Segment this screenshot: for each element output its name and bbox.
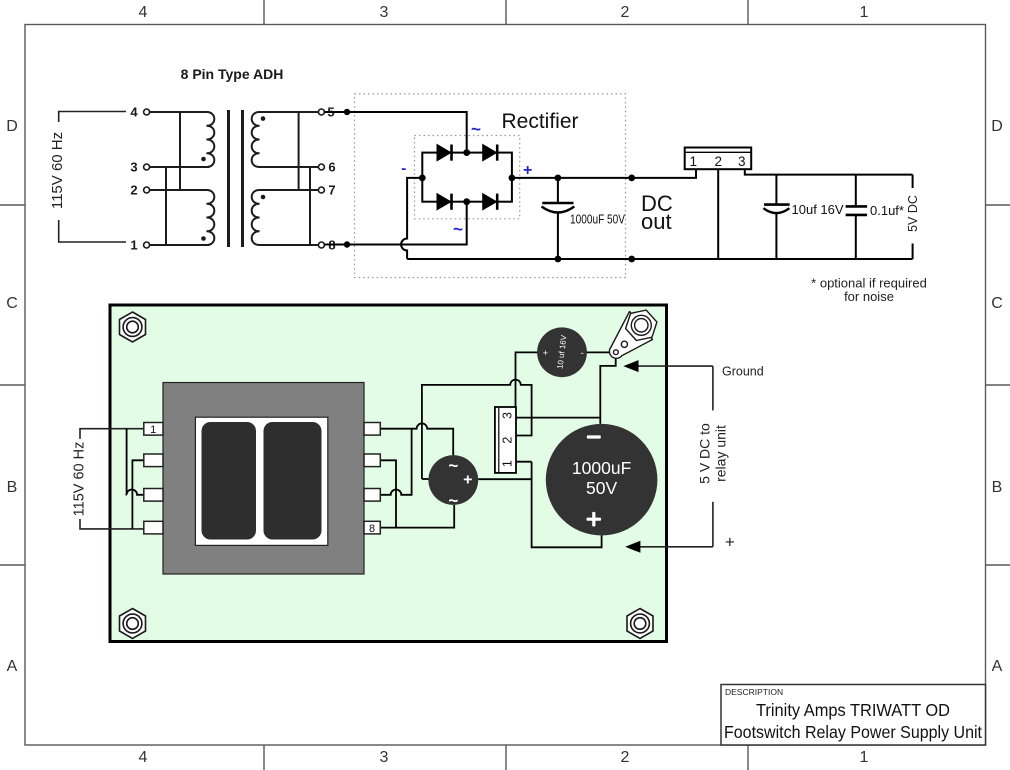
svg-text:7: 7 (328, 183, 335, 198)
svg-text:-: - (401, 160, 406, 177)
svg-text:D: D (6, 118, 18, 135)
svg-text:8: 8 (369, 523, 375, 535)
svg-text:10uf 16V: 10uf 16V (792, 202, 844, 217)
svg-text:1: 1 (860, 749, 869, 766)
svg-text:Footswitch Relay Power Supply: Footswitch Relay Power Supply Unit (724, 722, 982, 742)
svg-text:6: 6 (328, 160, 335, 175)
svg-text:50V: 50V (586, 478, 617, 498)
svg-text:1: 1 (130, 238, 137, 253)
svg-text:~: ~ (448, 491, 458, 510)
svg-text:out: out (641, 209, 672, 234)
svg-text:1: 1 (501, 460, 515, 467)
svg-text:4: 4 (139, 749, 148, 766)
svg-text:A: A (7, 658, 18, 675)
svg-text:+: + (463, 472, 472, 489)
svg-text:Trinity Amps TRIWATT OD: Trinity Amps TRIWATT OD (756, 700, 950, 720)
svg-text:1000uF: 1000uF (572, 458, 631, 478)
svg-text:1000uF 50V: 1000uF 50V (570, 213, 626, 227)
svg-text:1: 1 (860, 4, 869, 21)
svg-text:4: 4 (139, 4, 148, 21)
svg-text:2: 2 (621, 749, 630, 766)
svg-text:1: 1 (690, 154, 698, 169)
svg-text:B: B (7, 479, 18, 496)
svg-text:1: 1 (150, 424, 156, 436)
svg-text:+: + (725, 533, 735, 552)
svg-text:115V 60 Hz: 115V 60 Hz (49, 132, 66, 209)
svg-text:0.1uf*: 0.1uf* (870, 203, 904, 218)
svg-text:B: B (992, 479, 1003, 496)
svg-text:8 Pin Type ADH: 8 Pin Type ADH (181, 66, 284, 82)
svg-text:D: D (991, 118, 1003, 135)
svg-text:A: A (992, 658, 1003, 675)
svg-text:2: 2 (621, 4, 630, 21)
svg-text:relay unit: relay unit (712, 425, 728, 482)
svg-text:Ground: Ground (722, 365, 764, 379)
svg-text:DESCRIPTION: DESCRIPTION (725, 687, 783, 697)
svg-text:for noise: for noise (844, 289, 894, 304)
svg-text:3: 3 (130, 160, 137, 175)
svg-text:+: + (543, 348, 548, 358)
svg-text:5V DC: 5V DC (906, 195, 920, 232)
svg-text:+: + (523, 162, 532, 179)
svg-text:~: ~ (453, 220, 463, 239)
svg-text:3: 3 (380, 749, 389, 766)
svg-text:-: - (581, 348, 584, 358)
svg-text:~: ~ (448, 456, 458, 475)
svg-text:2: 2 (130, 183, 137, 198)
svg-text:3: 3 (738, 154, 746, 169)
svg-text:2: 2 (714, 154, 722, 169)
svg-text:4: 4 (130, 105, 138, 120)
svg-text:115V 60 Hz: 115V 60 Hz (72, 442, 88, 517)
svg-text:C: C (991, 295, 1003, 312)
svg-text:C: C (6, 295, 18, 312)
svg-text:~: ~ (471, 120, 481, 139)
svg-text:5 V DC to: 5 V DC to (697, 423, 713, 484)
svg-text:3: 3 (501, 412, 515, 419)
svg-text:2: 2 (501, 437, 515, 444)
svg-text:Rectifier: Rectifier (501, 110, 578, 133)
svg-text:3: 3 (380, 4, 389, 21)
